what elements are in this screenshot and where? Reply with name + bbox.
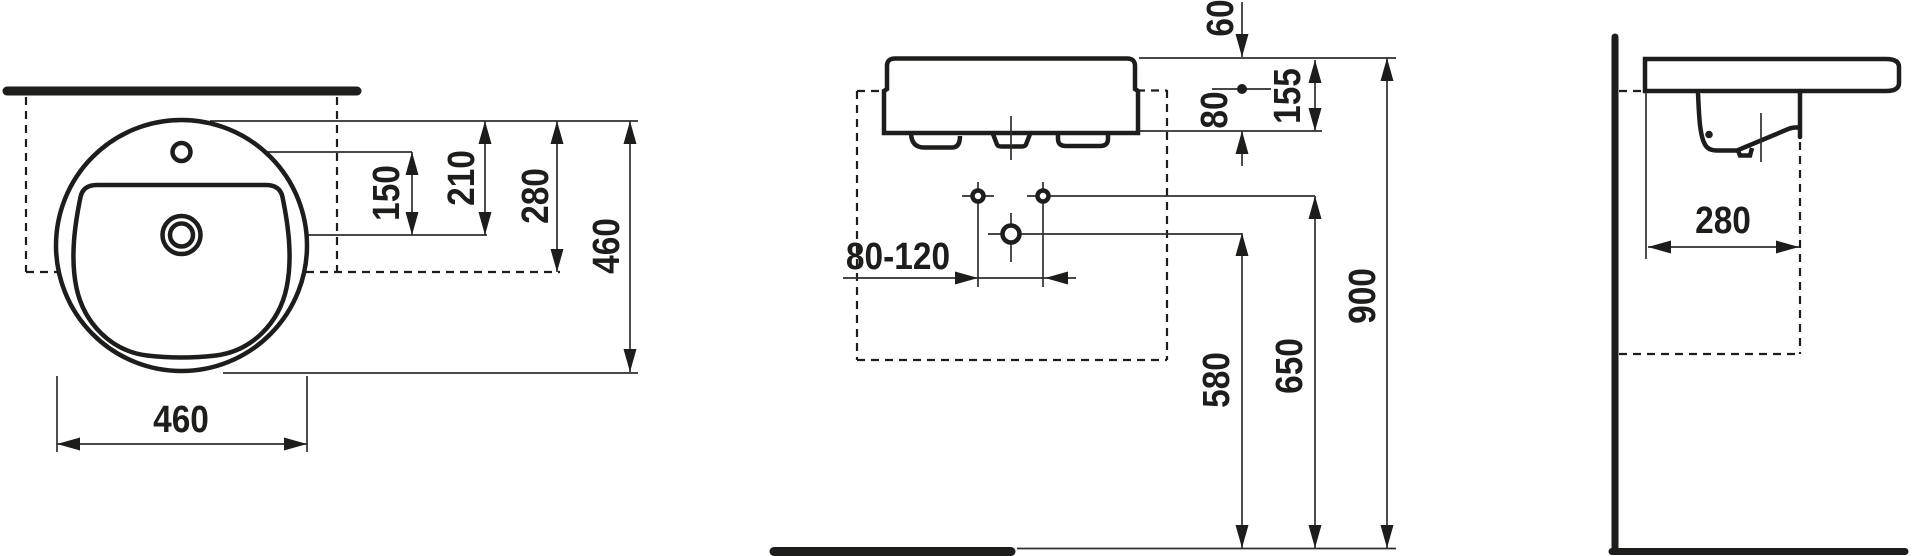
basin-underside-profile: [1698, 92, 1799, 151]
arrow-up-icon: [1309, 60, 1322, 83]
arrow-up-icon: [1236, 233, 1249, 256]
fixing-hole-dot: [1705, 131, 1713, 139]
countertop-slab: [1645, 59, 1899, 91]
arrow-up-icon: [624, 121, 637, 144]
dim-label-155: 155: [1269, 68, 1307, 124]
dim-label-460-right: 460: [588, 218, 626, 274]
dim-label-80: 80: [1196, 91, 1234, 128]
arrow-up-icon: [1236, 131, 1249, 154]
arrow-down-icon: [1381, 525, 1394, 548]
dim-label-210: 210: [443, 150, 481, 206]
arrow-left-icon: [57, 438, 80, 451]
drain-outlet: [1003, 226, 1020, 243]
dim-label-80-120: 80-120: [846, 238, 950, 276]
fixing-hole-right: [1038, 191, 1049, 202]
arrow-left-icon: [1045, 272, 1068, 285]
arrow-down-icon: [624, 349, 637, 372]
tap-hole: [173, 143, 191, 161]
dim-label-60: 60: [1202, 0, 1240, 37]
arrow-left-icon: [1648, 241, 1671, 254]
arrow-down-icon: [551, 249, 564, 272]
basin-foot-right: [1058, 134, 1108, 146]
dim-label-580: 580: [1198, 352, 1236, 408]
top-view: [7, 91, 638, 452]
arrow-right-icon: [284, 438, 307, 451]
side-view: [1612, 37, 1905, 552]
arrow-right-icon: [1776, 241, 1799, 254]
dim-label-150: 150: [368, 165, 406, 221]
drawing-canvas: [0, 0, 1920, 556]
basin-foot-left: [911, 134, 960, 148]
arrow-down-icon: [1236, 525, 1249, 548]
dim-label-460-bottom: 460: [153, 401, 209, 439]
arrow-up-icon: [479, 121, 492, 144]
arrow-up-icon: [551, 121, 564, 144]
dimension-drawing: 150 210 280 460 460 60 80 155 80-120 580…: [0, 0, 1920, 556]
arrow-down-icon: [1236, 34, 1249, 57]
arrow-down-icon: [1309, 108, 1322, 131]
dim-label-280-side: 280: [1695, 202, 1751, 240]
reference-dot: [1237, 84, 1247, 94]
arrow-down-icon: [1309, 525, 1322, 548]
arrow-up-icon: [1309, 196, 1322, 219]
fixing-hole-left: [973, 191, 984, 202]
arrow-up-icon: [1381, 58, 1394, 81]
dim-label-650: 650: [1271, 338, 1309, 394]
arrow-right-icon: [955, 272, 978, 285]
dim-label-280-top: 280: [517, 168, 555, 224]
dim-label-900: 900: [1344, 268, 1382, 324]
arrow-down-icon: [479, 212, 492, 235]
